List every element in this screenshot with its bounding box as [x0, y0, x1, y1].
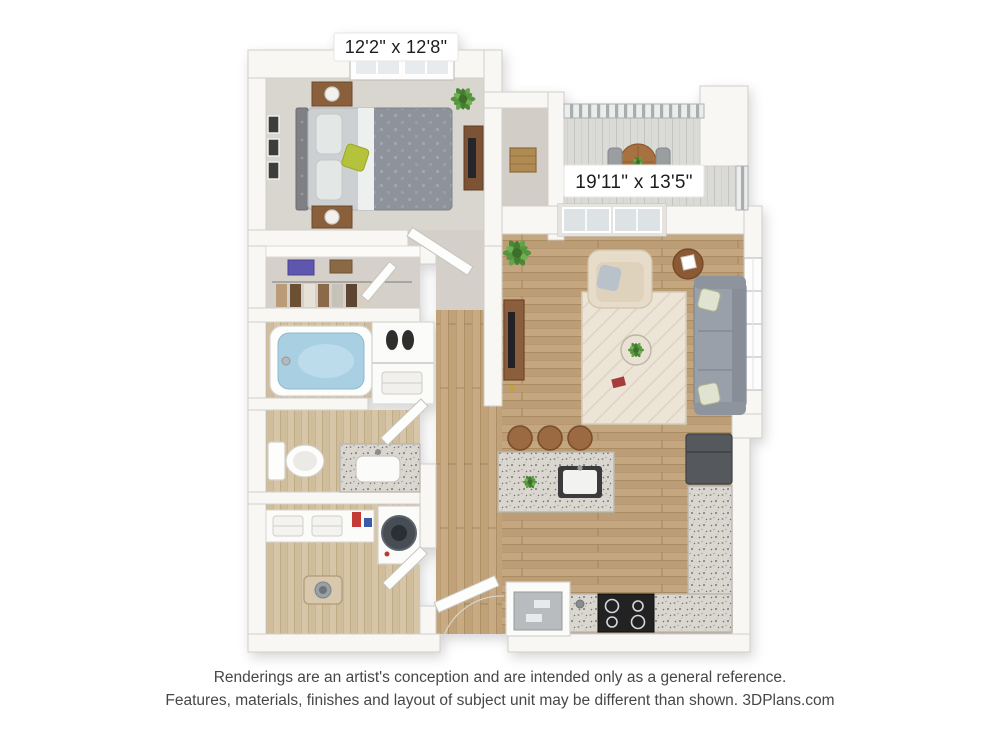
sofa-pillow [697, 288, 721, 312]
right-wall-jog [732, 414, 762, 438]
pillow [316, 114, 342, 154]
tv-icon [468, 138, 476, 178]
towel-shelf-icon [266, 510, 374, 542]
stove-icon [598, 594, 654, 632]
tub-toilet-divider-wall [248, 398, 368, 410]
hall-join-floor [484, 406, 502, 634]
closet-shelf [266, 246, 420, 257]
kitchen-right-wall [732, 438, 750, 652]
lamp-icon [325, 210, 339, 224]
tv-console-icon [504, 300, 524, 390]
coffee-table-icon [621, 335, 651, 365]
bottom-wall-right [508, 634, 750, 652]
nightstand-icon [312, 206, 352, 228]
hanging-clothes-icon [276, 284, 371, 307]
disclaimer-line-1: Renderings are an artist's conception an… [0, 666, 1000, 689]
bedroom-south-wall [248, 230, 408, 246]
lamp-icon [325, 87, 339, 101]
kitchen-island-icon [498, 452, 614, 512]
shoes-icon [386, 330, 398, 350]
bed-icon [296, 108, 452, 210]
storage-closet [510, 148, 536, 172]
dresser-icon [464, 126, 483, 190]
faucet-icon [375, 449, 381, 455]
bar-stool-icon [508, 426, 532, 450]
armchair-icon [588, 250, 652, 308]
side-table-icon [673, 249, 703, 279]
bedroom-dimension-label: 12'2" x 12'8" [345, 37, 448, 57]
bar-stool-icon [568, 426, 592, 450]
bottom-wall-left [248, 634, 440, 652]
railing-icon [564, 104, 704, 118]
storage-box-icon [330, 260, 352, 273]
fridge-icon [686, 434, 732, 484]
living-west-wall [484, 246, 502, 406]
laundry-cup-icon [364, 518, 372, 527]
floor-plan-rendering: 12'2" x 12'8" 19'11" x 13'5" [0, 0, 1000, 750]
shoes-icon [402, 330, 414, 350]
sofa-back [732, 284, 745, 406]
faucet-icon [577, 465, 582, 470]
oven-cabinet-icon [506, 582, 570, 636]
sliding-door-icon [558, 204, 666, 236]
sofa-pillow [697, 382, 721, 406]
duvet [372, 108, 452, 210]
picture-frames-icon [268, 116, 279, 179]
linen-closet [372, 322, 434, 404]
tv-icon [508, 312, 515, 368]
toilet-icon [268, 442, 324, 480]
picture-frame-icon [681, 255, 696, 270]
living-dimension-label: 19'11" x 13'5" [575, 172, 693, 193]
bar-stools [508, 426, 592, 450]
pillow [316, 160, 342, 200]
railing-icon [736, 166, 748, 210]
storage-bin-icon [288, 260, 314, 275]
apartment-floor-plan: 12'2" x 12'8" 19'11" x 13'5" [248, 33, 762, 652]
sofa-icon [694, 276, 746, 415]
bar-stool-icon [538, 426, 562, 450]
bath-laundry-divider-wall [248, 492, 420, 504]
faucet-icon [282, 357, 290, 365]
bathtub-icon [270, 326, 372, 396]
bedroom-right-wall [484, 50, 502, 246]
pet-bowl-icon [304, 576, 342, 604]
living-window [744, 258, 762, 390]
balcony-corner-wall [700, 86, 748, 166]
nightstand-icon [312, 82, 352, 106]
basket-icon [510, 148, 536, 172]
closet-bath-divider-wall [248, 308, 420, 322]
prep-sink-icon [576, 600, 584, 608]
detergent-icon [352, 512, 361, 527]
sofa-arm [694, 276, 746, 289]
left-exterior-wall [248, 50, 266, 652]
disclaimer-line-2: Features, materials, finishes and layout… [0, 689, 1000, 712]
vanity-sink-icon [340, 444, 420, 492]
hall-west-wall-b [420, 464, 436, 548]
